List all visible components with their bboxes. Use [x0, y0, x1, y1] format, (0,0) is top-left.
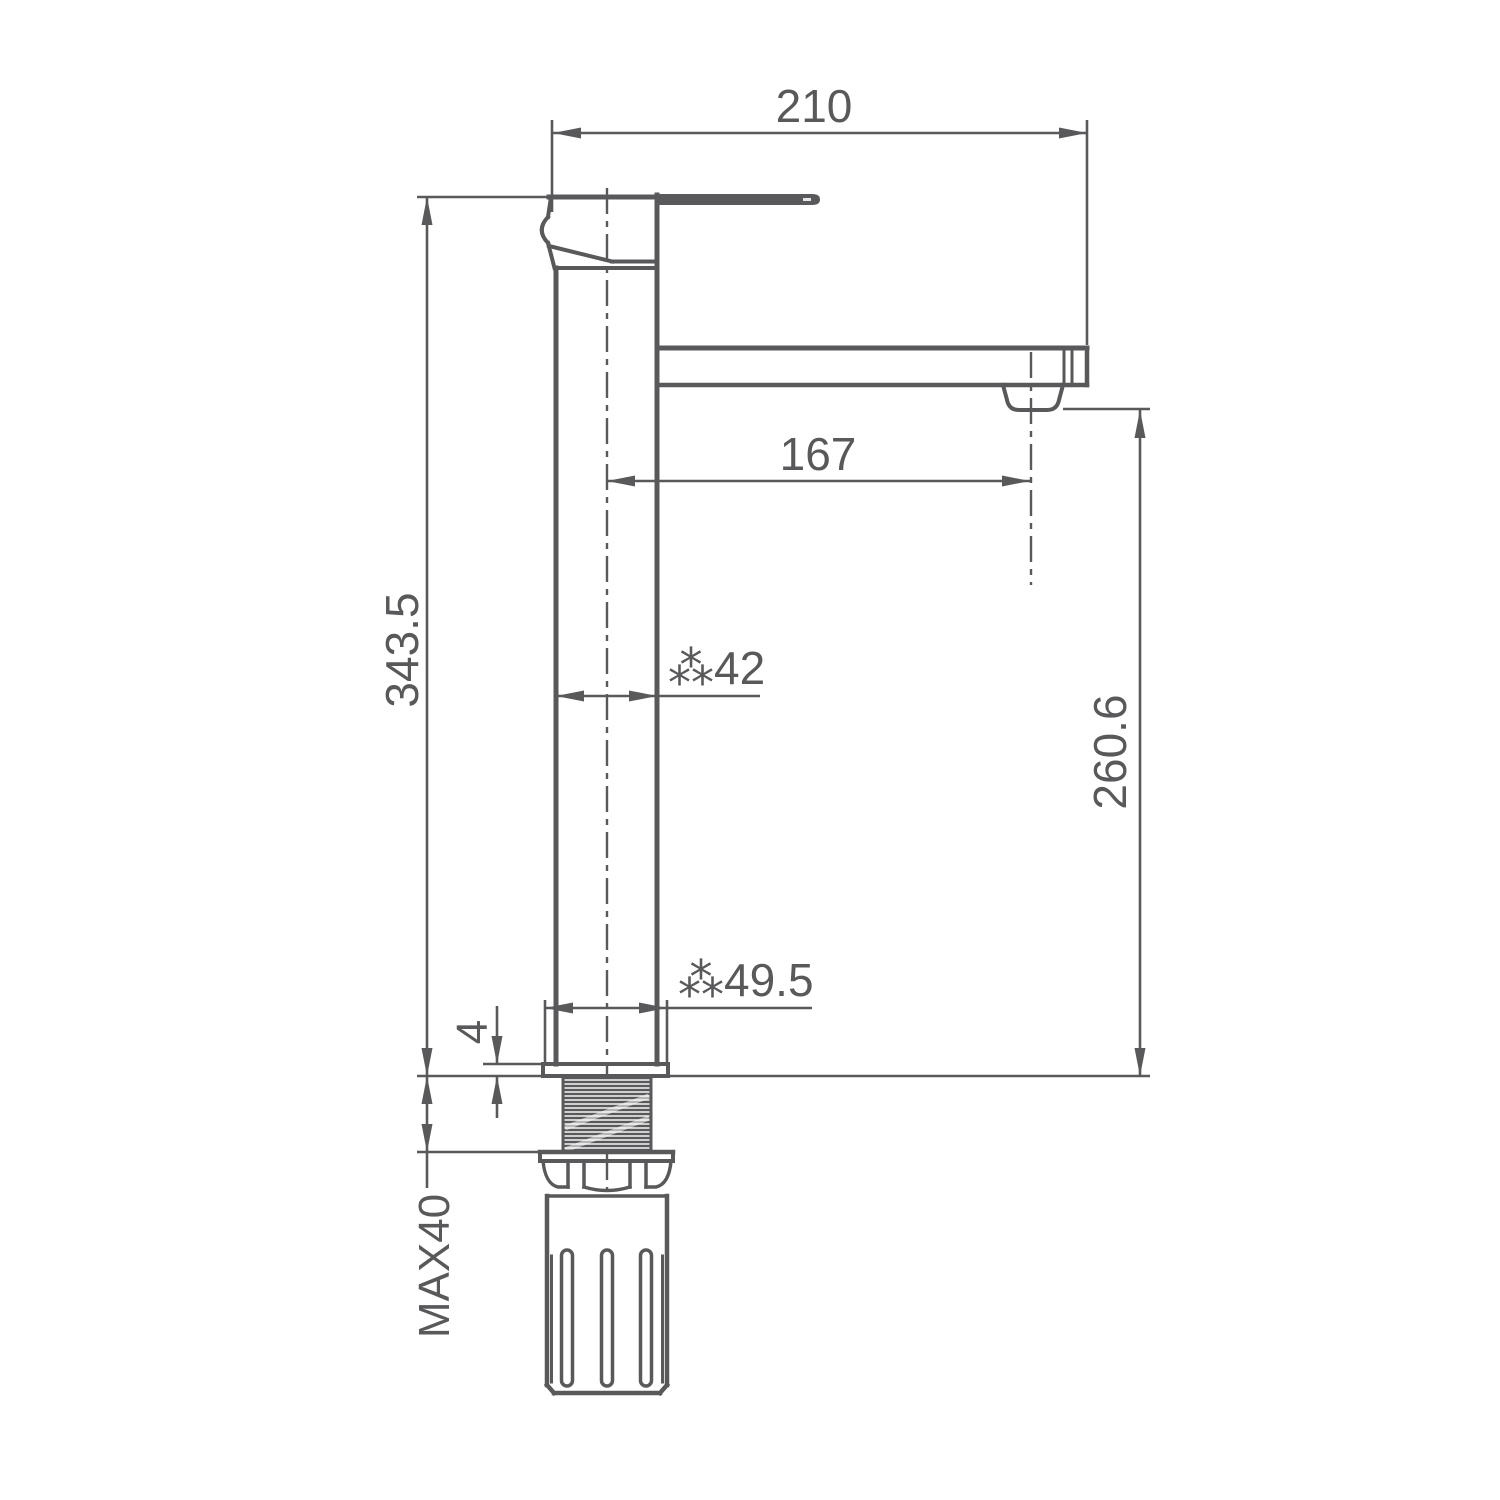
dim-label-plate-thickness: 4 — [448, 1020, 497, 1044]
dim-label-total-height: 343.5 — [376, 592, 428, 707]
dim-label-body-diameter: ⁂42 — [668, 642, 765, 694]
dimension-top-width: 210 — [552, 80, 1087, 345]
handle-button-bump — [542, 217, 548, 243]
technical-drawing-page: 210 343.5 167 260.6 ⁂42 ⁂49.5 — [0, 0, 1500, 1500]
threaded-shank — [563, 1076, 651, 1152]
knurl-groove — [602, 1250, 613, 1386]
knurl-groove — [641, 1250, 652, 1386]
dim-label-max-deck-thickness: MAX40 — [410, 1194, 459, 1338]
dimension-total-height: 343.5 — [376, 197, 549, 1076]
dim-label-spout-reach: 167 — [780, 428, 857, 480]
dimension-spout-reach: 167 — [607, 428, 1030, 487]
faucet-outline — [540, 194, 1087, 1393]
base-plate — [543, 1064, 668, 1076]
dimension-plate-thickness: 4 — [448, 1006, 543, 1118]
knurl-groove — [562, 1250, 573, 1386]
handle-lever — [655, 194, 820, 205]
dim-label-outlet-height: 260.6 — [1084, 694, 1136, 809]
dimension-max-deck-thickness: MAX40 — [410, 1076, 540, 1338]
spout-arm — [657, 348, 1087, 385]
knurled-sleeve — [547, 1196, 667, 1393]
dimension-base-diameter: ⁂49.5 — [545, 954, 814, 1064]
faucet-head — [542, 195, 657, 268]
faucet-dimension-drawing: 210 343.5 167 260.6 ⁂42 ⁂49.5 — [0, 0, 1500, 1500]
aerator-nozzle — [1003, 385, 1063, 410]
dim-label-top-width: 210 — [776, 80, 853, 132]
dim-label-base-diameter: ⁂49.5 — [678, 954, 814, 1006]
dimension-body-diameter: ⁂42 — [556, 642, 765, 702]
